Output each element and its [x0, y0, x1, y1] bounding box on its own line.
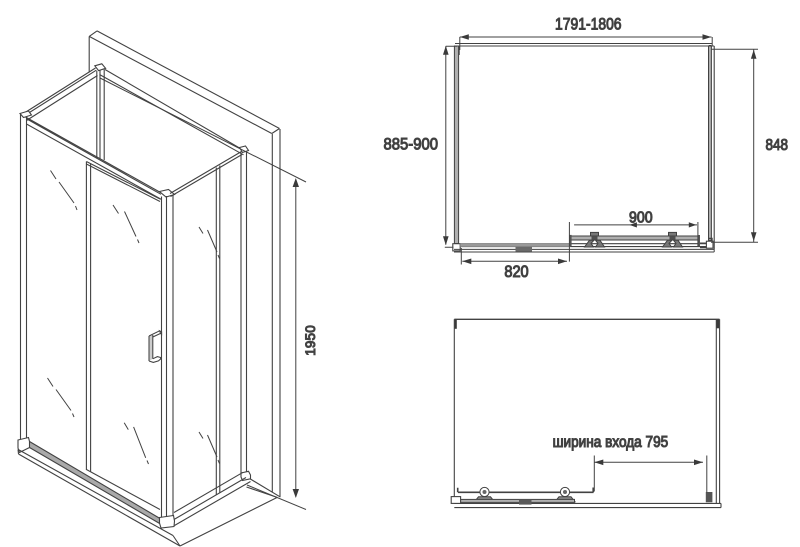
svg-text:848: 848 [766, 137, 789, 154]
svg-text:885-900: 885-900 [384, 135, 439, 154]
svg-text:900: 900 [629, 209, 653, 226]
svg-text:ширина входа 795: ширина входа 795 [553, 434, 669, 451]
svg-text:1791-1806: 1791-1806 [555, 15, 622, 34]
svg-text:1950: 1950 [303, 325, 318, 356]
svg-text:820: 820 [504, 263, 528, 281]
